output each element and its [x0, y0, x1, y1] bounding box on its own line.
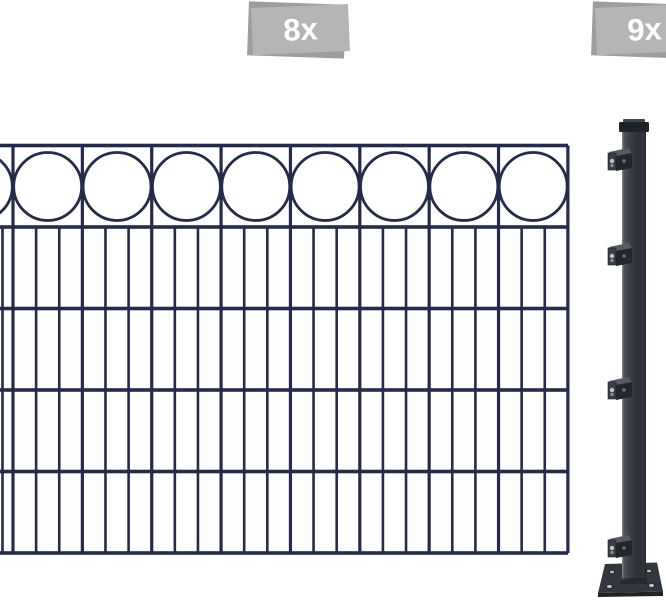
fence-vertical-bar	[405, 227, 408, 553]
bracket-screw	[610, 164, 613, 167]
bracket-screw	[622, 159, 626, 163]
fence-divider	[566, 146, 569, 554]
fence-rail	[0, 307, 568, 311]
bracket-screw	[622, 254, 626, 258]
fence-vertical-bar	[266, 227, 269, 553]
fence-vertical-bar	[174, 227, 177, 553]
bracket-screw	[622, 546, 626, 550]
badge-panel-count: 8x	[246, 2, 350, 60]
ring-ornament	[14, 153, 82, 221]
fence-rail	[0, 388, 568, 392]
badge-post-count: 9x	[590, 2, 666, 60]
fence-vertical-bar	[312, 227, 315, 553]
fence-vertical-bar	[1, 227, 4, 553]
mounting-bracket	[608, 535, 632, 558]
bolt-hole	[607, 584, 613, 588]
bracket-screw	[610, 159, 614, 163]
fence-vertical-bar	[543, 227, 546, 553]
badge-ribbon-front: 8x	[251, 4, 350, 55]
fence-vertical-bar	[474, 227, 477, 553]
fence-vertical-bar	[243, 227, 246, 553]
badge-ribbon-front: 9x	[595, 4, 666, 55]
fence-divider	[497, 146, 500, 554]
fence-divider	[11, 146, 14, 554]
bolt-hole	[610, 570, 615, 574]
mounting-bracket	[608, 148, 632, 171]
ring-ornament	[83, 153, 151, 221]
fence-vertical-bar	[335, 227, 338, 553]
ring-ornament	[499, 153, 567, 221]
ring-ornament	[291, 153, 359, 221]
fence-vertical-bar	[58, 227, 61, 553]
ring-ornament	[152, 153, 220, 221]
mounting-bracket	[608, 377, 632, 400]
ring-ornament	[0, 153, 12, 221]
bracket-screw	[622, 388, 626, 392]
bolt-hole	[647, 569, 652, 573]
bolt-hole	[649, 583, 655, 587]
bracket-screw	[610, 546, 614, 550]
post-cap	[619, 122, 649, 132]
post-edge-highlight	[622, 130, 623, 580]
fence-divider	[81, 146, 84, 554]
post-base-shadow	[620, 578, 648, 584]
product-image: 8x 9x	[0, 0, 666, 600]
fence-rail	[0, 225, 568, 229]
fence-vertical-bar	[382, 227, 385, 553]
fence-rail	[0, 551, 568, 555]
fence-rail	[0, 144, 568, 148]
ring-ornament-row	[0, 153, 567, 221]
fence-post	[598, 119, 663, 597]
fence-divider	[289, 146, 292, 554]
mounting-bracket	[608, 243, 632, 266]
ring-ornament	[222, 153, 290, 221]
fence-vertical-bar	[35, 227, 38, 553]
ring-ornament	[430, 153, 498, 221]
bracket-screw	[610, 259, 613, 262]
fence-vertical-bar	[451, 227, 454, 553]
fence-vertical-bar	[104, 227, 107, 553]
fence-rail	[0, 470, 568, 474]
fence-vertical-bar	[520, 227, 523, 553]
badge-label: 9x	[627, 13, 663, 45]
bracket-screw	[610, 393, 613, 396]
scene-svg	[0, 0, 666, 600]
badge-label: 8x	[283, 13, 319, 45]
bracket-screw	[610, 254, 614, 258]
fence-vertical-bar	[197, 227, 200, 553]
bracket-screw	[610, 551, 613, 554]
bracket-screw	[610, 388, 614, 392]
fence-vertical-bar	[127, 227, 130, 553]
fence-divider	[428, 146, 431, 554]
post-body	[622, 130, 646, 580]
fence-divider	[150, 146, 153, 554]
ring-ornament	[360, 153, 428, 221]
post-edge-shadow	[645, 130, 647, 580]
fence-divider	[358, 146, 361, 554]
fence-divider	[219, 146, 222, 554]
